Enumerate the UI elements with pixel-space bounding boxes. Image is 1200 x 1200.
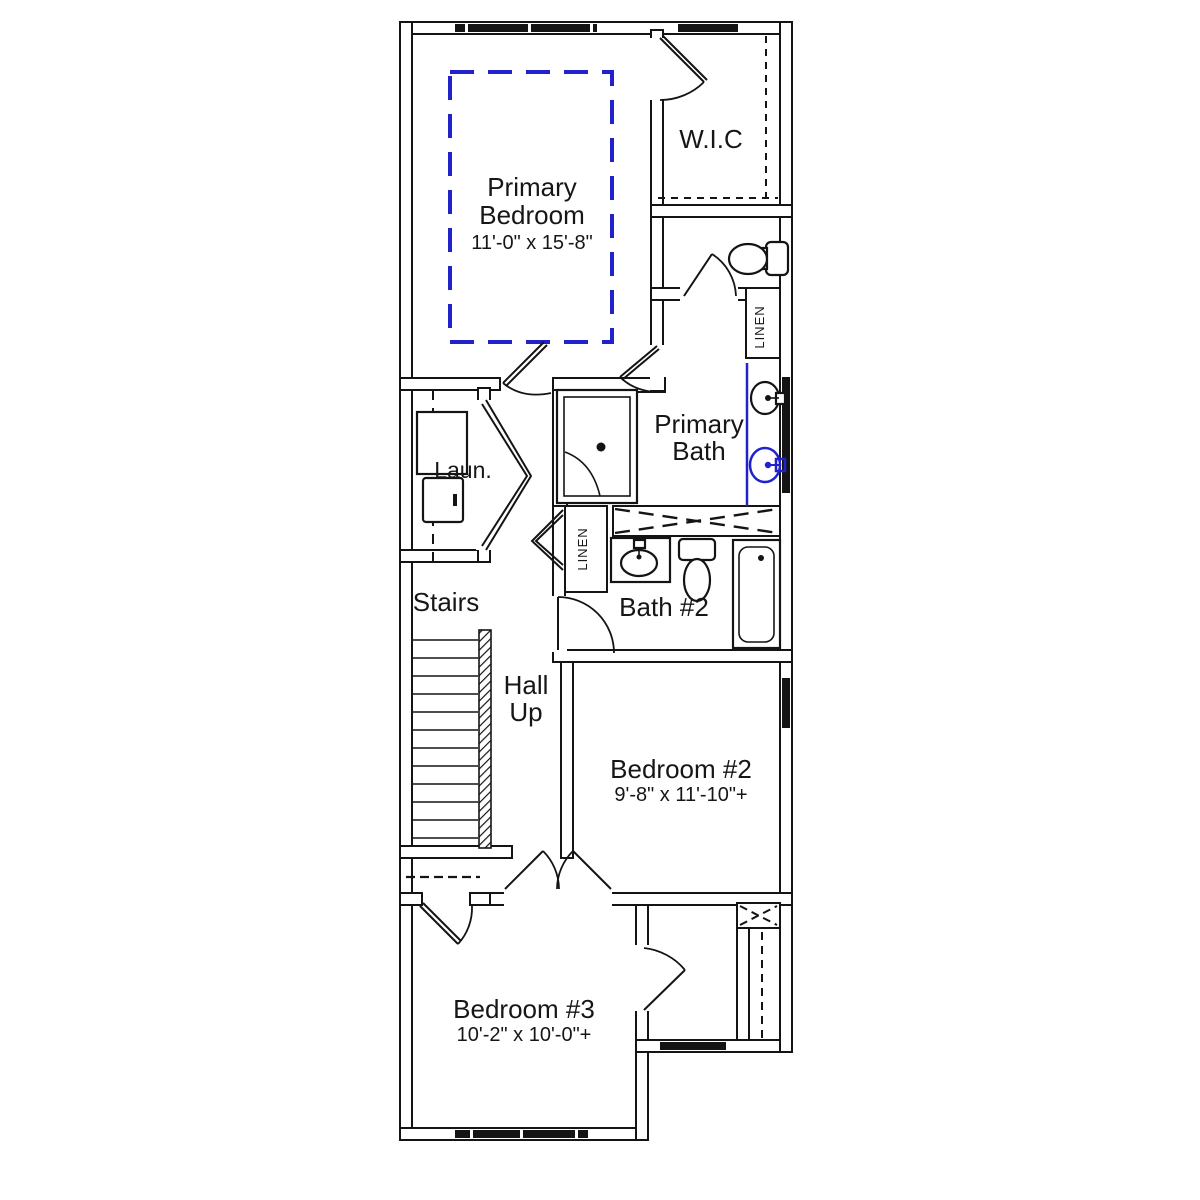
hall-label-1: Hall	[504, 670, 549, 700]
bath2-sink	[611, 538, 670, 582]
floor-plan-page: Primary Bedroom 11'-0" x 15'-8" W.I.C Pr…	[0, 0, 1200, 1200]
wic-door	[660, 36, 707, 82]
primary-bedroom-door	[503, 342, 547, 386]
bathtub-icon	[733, 540, 780, 648]
bedroom2-label: Bedroom #2	[610, 754, 752, 784]
primary-bath-label-2: Bath	[672, 436, 726, 466]
closet-door	[644, 970, 685, 1010]
wic-label: W.I.C	[679, 124, 743, 154]
primary-bedroom-label-1: Primary	[487, 172, 577, 202]
linen-hall-label: LINEN	[575, 527, 590, 570]
primary-bedroom-label-2: Bedroom	[479, 200, 585, 230]
bath2-label: Bath #2	[619, 592, 709, 622]
stair-handrail	[479, 630, 491, 848]
tub-drain	[758, 555, 764, 561]
hall-label-2: Up	[509, 697, 542, 727]
shower	[557, 390, 637, 503]
bedroom3-label: Bedroom #3	[453, 994, 595, 1024]
shower-drain	[597, 443, 606, 452]
floor-plan-drawing: Primary Bedroom 11'-0" x 15'-8" W.I.C Pr…	[0, 0, 1200, 1200]
primary-bath-label-1: Primary	[654, 409, 744, 439]
stairs-label: Stairs	[413, 587, 479, 617]
primary-bedroom-dims: 11'-0" x 15'-8"	[471, 232, 593, 254]
bedroom2-dims: 9'-8" x 11'-10"+	[614, 784, 747, 806]
bedroom3-dims: 10'-2" x 10'-0"+	[457, 1024, 592, 1046]
primary-toilet-icon	[729, 242, 788, 275]
bedroom3-door	[420, 903, 461, 944]
laundry-label: Laun.	[434, 457, 492, 483]
wic-shelf-lines	[658, 36, 778, 200]
linen-upper-label: LINEN	[752, 305, 767, 348]
stairs	[406, 630, 491, 877]
